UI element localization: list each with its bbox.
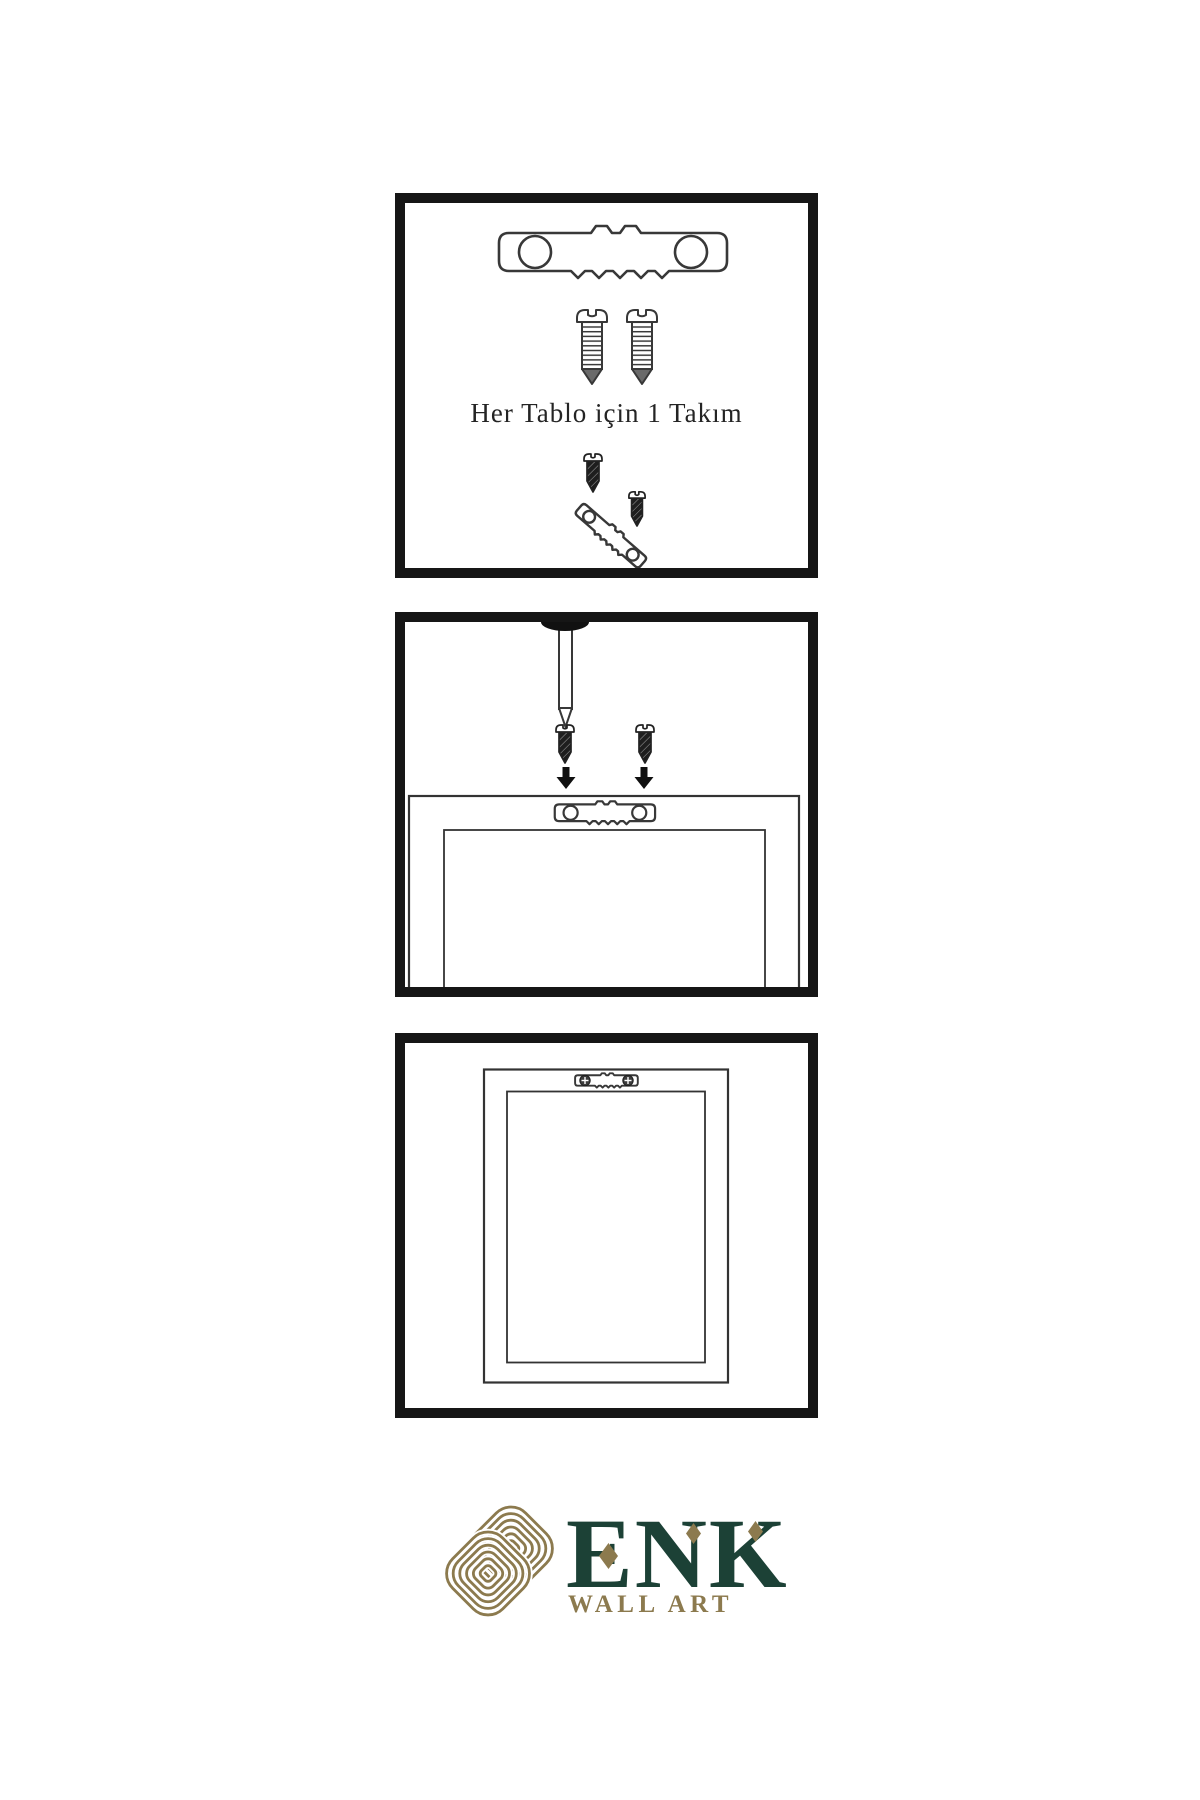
knot-logo-icon [437,1498,562,1625]
sawtooth-hanger-icon [555,801,655,824]
instruction-sheet: { "sheet": { "language": "Turkish", "bac… [0,0,1200,1800]
screw-into-hanger-icon [629,492,645,526]
frame-back-inner [507,1092,705,1363]
step-2-illustration [405,622,808,987]
kit-caption: Her Tablo için 1 Takım [405,397,808,429]
mounting-screw-icon [577,310,607,384]
step-1-illustration [405,203,808,568]
screw-icon [556,725,574,763]
wall-nail-icon [541,622,589,727]
step-3-illustration [405,1043,808,1408]
mounting-screw-icon [627,310,657,384]
instruction-step-1: Her Tablo için 1 Takım [395,193,818,578]
frame-back-inner [444,830,765,987]
instruction-step-3 [395,1033,818,1418]
screw-icon [636,725,654,763]
crosshead-screw-icon [580,1075,590,1085]
arrow-down-icon [635,767,654,789]
screw-into-hanger-icon [584,454,602,492]
arrow-down-icon [557,767,576,789]
brand-name: ENK [566,1504,789,1604]
brand-subtitle: WALL ART [568,1591,733,1619]
instruction-step-2 [395,612,818,997]
crosshead-screw-icon [623,1075,633,1085]
sawtooth-hanger-icon [499,226,727,278]
